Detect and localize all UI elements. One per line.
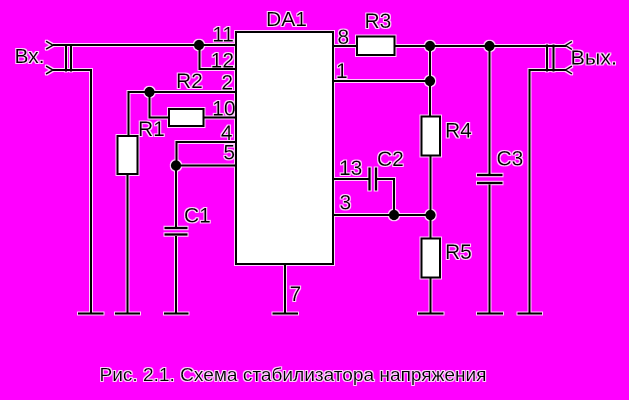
- svg-text:C1: C1: [184, 205, 211, 228]
- svg-text:C2: C2: [377, 148, 404, 171]
- svg-text:1: 1: [336, 60, 348, 83]
- svg-text:12: 12: [211, 50, 234, 73]
- svg-text:10: 10: [212, 98, 235, 121]
- svg-text:11: 11: [212, 24, 234, 47]
- svg-text:R3: R3: [365, 10, 392, 33]
- svg-text:R2: R2: [176, 70, 203, 93]
- svg-text:R1: R1: [138, 118, 165, 141]
- svg-text:13: 13: [339, 157, 362, 180]
- svg-text:R5: R5: [445, 241, 472, 264]
- svg-text:Вых.: Вых.: [571, 48, 618, 70]
- svg-text:5: 5: [223, 142, 235, 165]
- svg-text:2: 2: [221, 72, 233, 95]
- svg-text:8: 8: [338, 26, 350, 49]
- svg-text:DA1: DA1: [266, 9, 307, 31]
- svg-text:7: 7: [290, 283, 302, 306]
- svg-text:Вх.: Вх.: [15, 46, 45, 68]
- svg-text:C3: C3: [497, 148, 524, 171]
- svg-text:Рис. 2.1. Схема стабилизатора: Рис. 2.1. Схема стабилизатора напряжения: [100, 365, 487, 385]
- svg-text:R4: R4: [445, 120, 472, 143]
- svg-text:3: 3: [340, 192, 352, 215]
